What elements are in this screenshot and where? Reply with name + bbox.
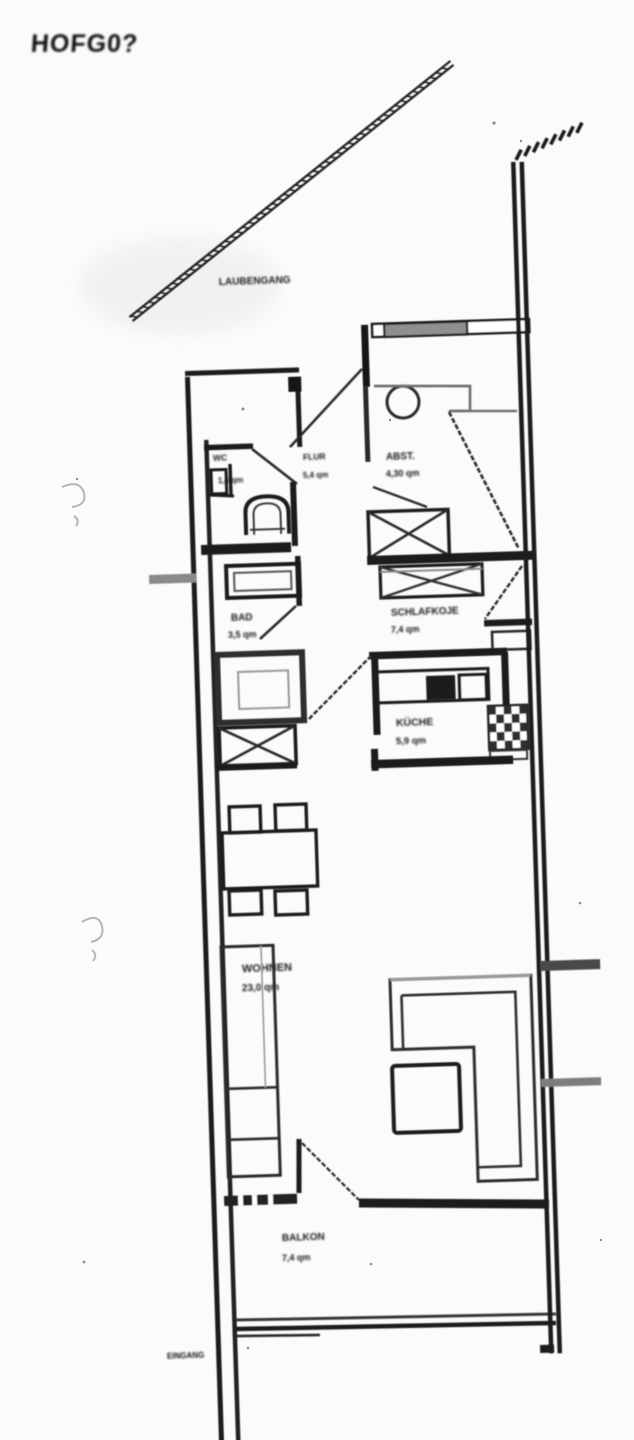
- svg-text:WOHNEN: WOHNEN: [242, 961, 293, 975]
- svg-text:SCHLAFKOJE: SCHLAFKOJE: [391, 606, 459, 619]
- svg-text:LAUBENGANG: LAUBENGANG: [219, 275, 291, 288]
- svg-text:4,30 qm: 4,30 qm: [386, 468, 420, 479]
- svg-text:ABST.: ABST.: [386, 451, 415, 463]
- svg-text:EINGANG: EINGANG: [167, 1351, 205, 1361]
- svg-text:HOFG0?: HOFG0?: [30, 30, 139, 58]
- svg-text:BAD: BAD: [231, 612, 253, 624]
- svg-text:KÜCHE: KÜCHE: [396, 715, 434, 729]
- svg-text:BALKON: BALKON: [282, 1232, 325, 1244]
- svg-text:7,4 qm: 7,4 qm: [391, 624, 420, 635]
- svg-text:3,5 qm: 3,5 qm: [228, 629, 257, 640]
- svg-text:5,4 qm: 5,4 qm: [303, 470, 329, 480]
- svg-text:7,4 qm: 7,4 qm: [282, 1252, 311, 1263]
- svg-text:5,9 qm: 5,9 qm: [396, 735, 426, 747]
- svg-text:FLUR: FLUR: [303, 451, 326, 462]
- svg-text:WC: WC: [213, 453, 227, 463]
